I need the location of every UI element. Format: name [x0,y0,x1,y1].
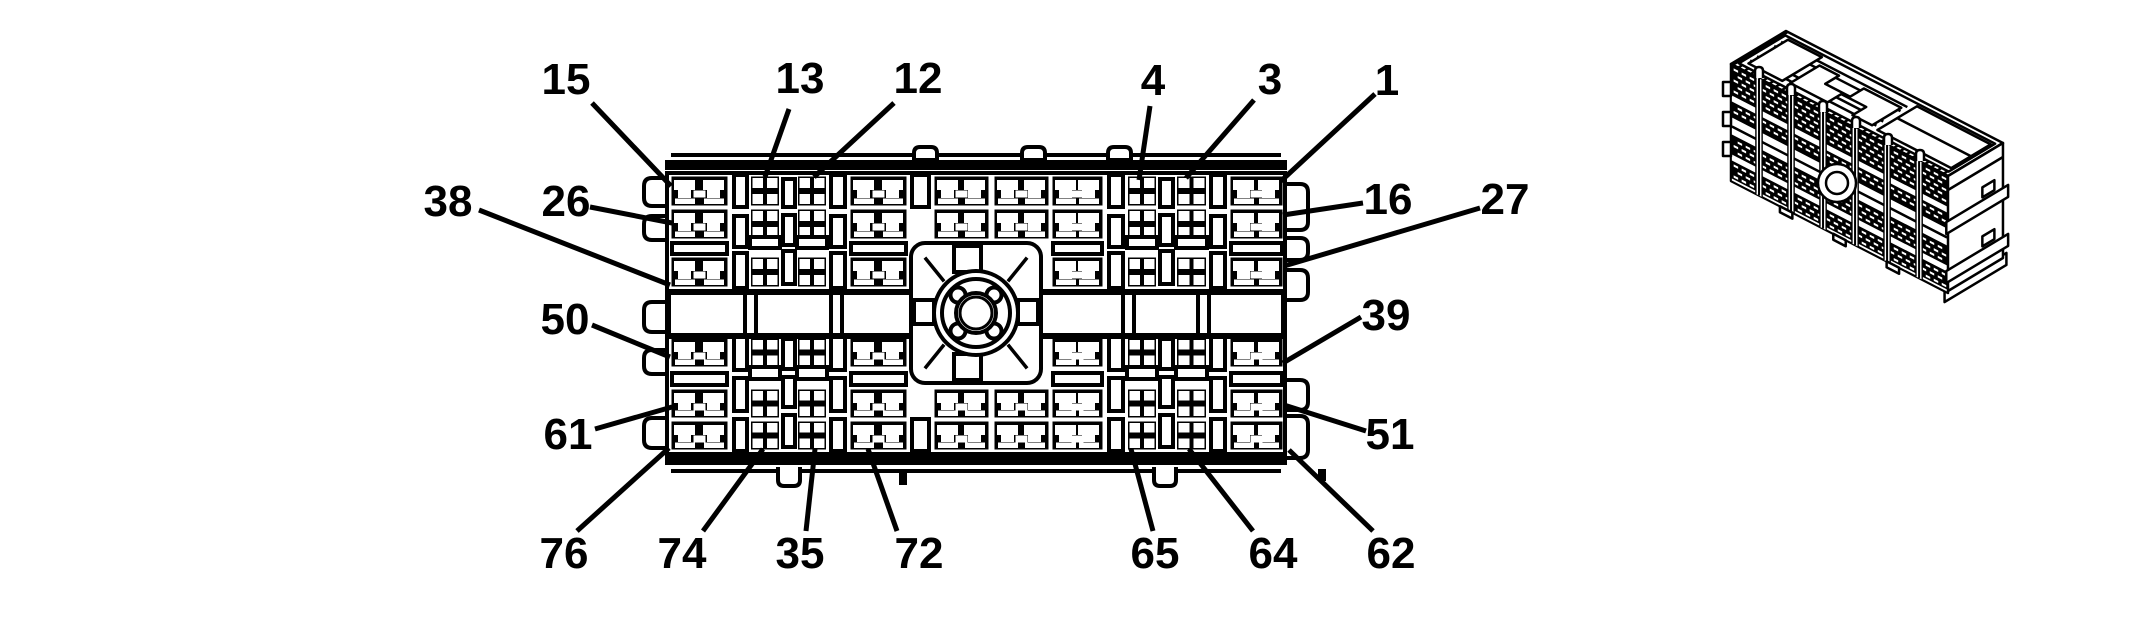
svg-text:62: 62 [1367,529,1416,578]
svg-text:3: 3 [1258,55,1282,104]
svg-text:65: 65 [1131,529,1180,578]
svg-text:1: 1 [1375,56,1399,105]
svg-text:15: 15 [542,55,591,104]
svg-text:64: 64 [1249,529,1298,578]
svg-text:35: 35 [776,529,825,578]
svg-text:38: 38 [424,177,473,226]
svg-text:61: 61 [544,410,593,459]
svg-text:26: 26 [542,177,591,226]
svg-text:51: 51 [1366,410,1415,459]
svg-text:74: 74 [658,529,707,578]
svg-text:76: 76 [540,529,589,578]
svg-text:13: 13 [776,54,825,103]
svg-text:27: 27 [1481,175,1530,224]
svg-text:4: 4 [1141,56,1166,105]
svg-text:12: 12 [894,54,943,103]
svg-text:72: 72 [895,529,944,578]
svg-text:50: 50 [541,295,590,344]
svg-text:39: 39 [1362,291,1411,340]
svg-text:16: 16 [1364,175,1413,224]
